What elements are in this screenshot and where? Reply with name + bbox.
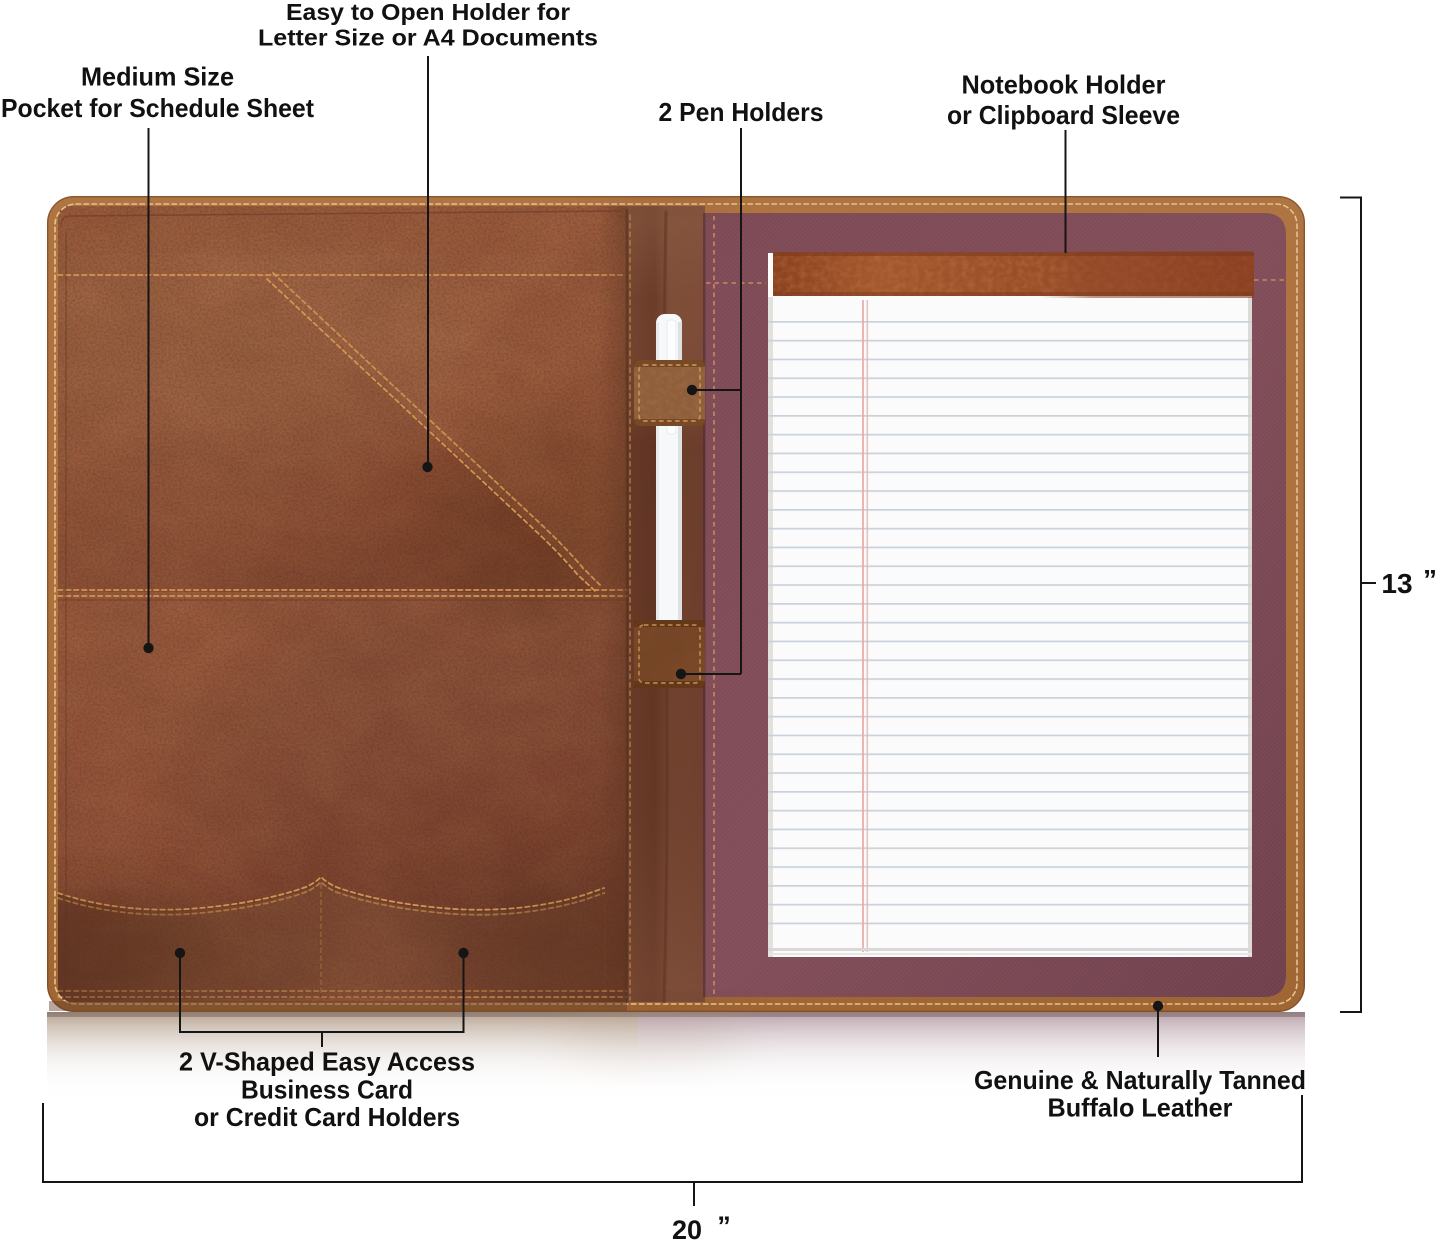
svg-text:20: 20 xyxy=(672,1215,702,1245)
svg-text:2 Pen Holders: 2 Pen Holders xyxy=(659,97,824,127)
svg-text:or Credit Card Holders: or Credit Card Holders xyxy=(194,1102,460,1132)
svg-text:Letter Size or A4 Documents: Letter Size or A4 Documents xyxy=(258,25,598,51)
svg-text:or Clipboard Sleeve: or Clipboard Sleeve xyxy=(947,100,1180,130)
svg-text:”: ” xyxy=(1423,564,1437,595)
svg-text:Business Card: Business Card xyxy=(241,1074,413,1104)
svg-text:”: ” xyxy=(717,1211,731,1241)
svg-text:Easy to Open Holder for: Easy to Open Holder for xyxy=(286,0,570,25)
svg-text:2 V-Shaped Easy Access: 2 V-Shaped Easy Access xyxy=(179,1047,475,1077)
svg-text:Pocket for Schedule Sheet: Pocket for Schedule Sheet xyxy=(1,93,314,123)
svg-text:Genuine & Naturally Tanned: Genuine & Naturally Tanned xyxy=(974,1065,1306,1095)
svg-text:Buffalo Leather: Buffalo Leather xyxy=(1048,1093,1233,1123)
svg-text:Medium Size: Medium Size xyxy=(81,62,234,92)
svg-text:13: 13 xyxy=(1381,568,1412,599)
svg-text:Notebook Holder: Notebook Holder xyxy=(962,70,1166,100)
